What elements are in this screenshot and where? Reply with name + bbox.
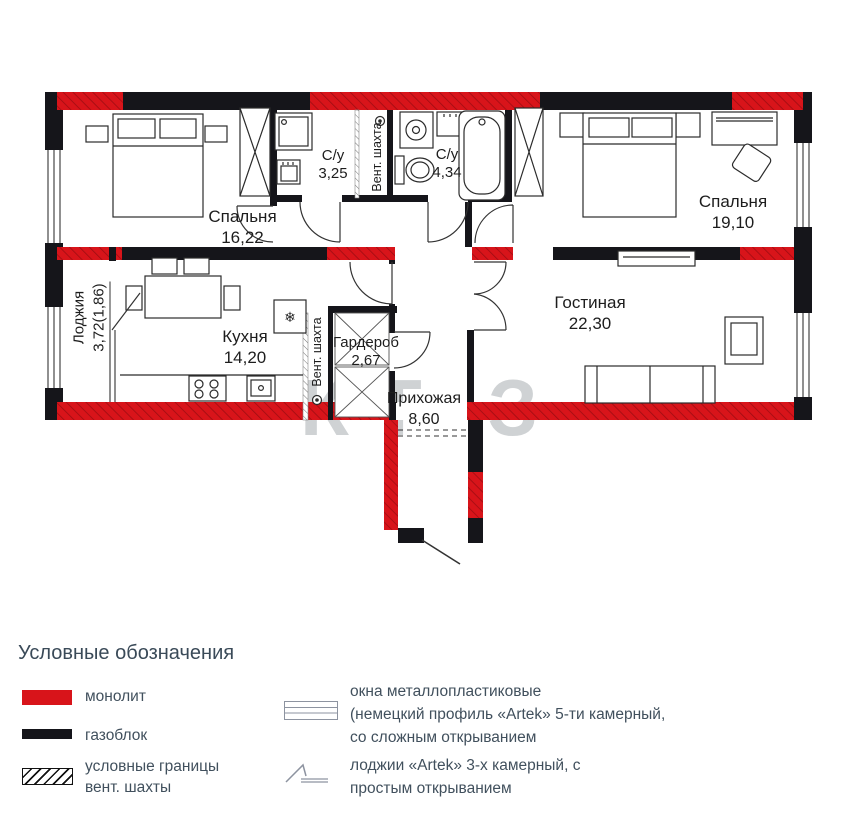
sink-1 xyxy=(277,160,300,184)
legend-title: Условные обозначения xyxy=(18,642,234,665)
legend-label-gasblock: газоблок xyxy=(85,725,147,746)
door-bath1 xyxy=(300,202,340,242)
bed-1 xyxy=(113,114,203,217)
fridge-icon: ❄ xyxy=(284,309,296,325)
room-label-bedroom2: Спальня 19,10 xyxy=(663,191,803,233)
legend-label-vent-borders: условные границы вент. шахты xyxy=(85,756,219,798)
desk xyxy=(712,112,777,145)
legend-swatch-gasblock xyxy=(22,729,72,739)
room-label-hallway: Прихожая 8,60 xyxy=(362,388,486,430)
room-label-wardrobe: Гардероб 2,67 xyxy=(321,334,411,370)
door-living-2 xyxy=(474,294,506,330)
door-entrance xyxy=(422,540,460,564)
wardrobe-closet xyxy=(240,108,270,196)
loggia-symbol-icon xyxy=(284,760,330,793)
legend: Условные обозначения монолит газоблок ус… xyxy=(0,630,853,828)
nightstand xyxy=(86,126,108,142)
room-label-bath1: С/у 3,25 xyxy=(305,147,361,183)
room-label-loggia: Лоджия 3,72(1,86) xyxy=(70,243,111,393)
nightstand xyxy=(205,126,227,142)
legend-swatch-vent-borders xyxy=(22,768,73,785)
room-label-living: Гостиная 22,30 xyxy=(520,292,660,334)
window-symbol-icon xyxy=(284,701,338,725)
stove xyxy=(189,376,226,401)
door-kitchen xyxy=(350,262,392,304)
door-bedroom2 xyxy=(475,205,513,243)
legend-label-windows: окна металлопластиковые (немецкий профил… xyxy=(350,680,665,749)
room-label-bath2: С/у 4,34 xyxy=(419,146,475,182)
nightstand xyxy=(560,113,584,137)
room-label-bedroom1: Спальня 16,22 xyxy=(180,206,305,248)
vent-shaft-label-top: Вент. шахта xyxy=(370,107,384,207)
armchair xyxy=(725,317,763,364)
sofa xyxy=(585,366,715,403)
tv-console xyxy=(618,251,695,266)
floor-plan: КТ З xyxy=(0,0,853,620)
room-label-kitchen: Кухня 14,20 xyxy=(193,326,297,368)
door-bath2 xyxy=(428,202,468,242)
legend-label-loggias: лоджии «Artek» 3-х камерный, с простым о… xyxy=(350,754,580,800)
legend-label-monolith: монолит xyxy=(85,686,146,707)
vent-shaft-label-kitchen: Вент. шахта xyxy=(310,304,324,400)
nightstand xyxy=(676,113,700,137)
kitchen-sink xyxy=(247,376,275,401)
wardrobe-closet-2 xyxy=(515,108,543,196)
washing-machine xyxy=(400,112,433,148)
floor-plan-drawing: ❄ xyxy=(0,0,853,620)
dining-table xyxy=(126,258,240,318)
door-living-1 xyxy=(474,262,506,294)
legend-swatch-monolith xyxy=(22,690,72,705)
chair xyxy=(731,143,772,183)
shower xyxy=(275,113,312,150)
